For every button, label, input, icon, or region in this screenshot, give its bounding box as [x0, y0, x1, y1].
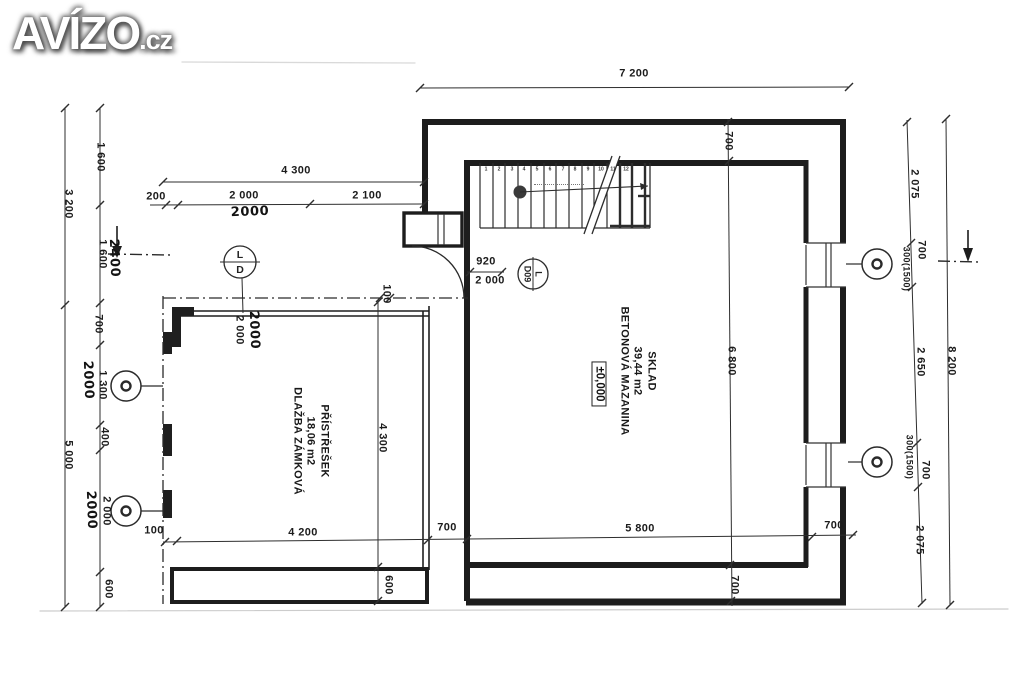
dim-200: 200 — [146, 192, 166, 203]
avizo-logo: AVÍZO.cz — [12, 6, 172, 60]
tread-number: 3 — [511, 168, 514, 173]
dim-2100: 2 100 — [352, 191, 382, 202]
room-floor: DLAŽBA ZÁMKOVÁ — [291, 387, 303, 495]
dim-700-bottom-right: 700 — [824, 521, 844, 532]
dim-700-win-top: 700 — [916, 240, 927, 260]
dim-4300-top: 4 300 — [281, 166, 311, 177]
entrance-pier — [404, 213, 462, 246]
dim-400: 400 — [99, 427, 110, 447]
door-swing-arc — [412, 246, 464, 298]
dim-700-win-bottom: 700 — [920, 460, 931, 480]
drain-symbol-left-bottom — [111, 496, 163, 526]
tread-number: 8 — [574, 168, 577, 173]
dim-gate-2000-hand: 2000 — [247, 310, 261, 349]
dim-700-top: 700 — [723, 131, 734, 151]
level-marker: ±0,000 — [592, 361, 607, 406]
dim-300-1500-top: 300(1500) — [902, 247, 911, 292]
dim-3200: 3 200 — [63, 189, 74, 219]
stair-annotation-smudge — [534, 184, 584, 185]
scan-artifacts — [40, 62, 1008, 611]
dim-700-gap: 700 — [437, 523, 457, 534]
tread-number: 5 — [536, 168, 539, 173]
door-marker-text: L D09 — [523, 265, 544, 283]
dim-1300: 1 300 — [97, 370, 108, 400]
dim-4200: 4 200 — [288, 528, 318, 539]
tread-number: 2 — [498, 168, 501, 173]
dim-2000-left: 2 000 — [101, 496, 112, 526]
drain-symbol-right-top — [846, 249, 892, 279]
dim-6800: 6 800 — [726, 346, 737, 376]
room-floor: BETONOVÁ MAZANINA — [618, 307, 630, 436]
logo-title: AVÍZO — [12, 7, 139, 59]
dim-700-left: 700 — [93, 314, 104, 334]
room-name: PŘÍSTŘEŠEK — [318, 404, 330, 477]
dim-8200: 8 200 — [946, 346, 957, 376]
dim-4300-vert: 4 300 — [377, 423, 388, 453]
tread-number: 9 — [587, 168, 590, 173]
window-right-top — [806, 243, 846, 287]
tread-number: 6 — [549, 168, 552, 173]
dim-door-width: 920 — [476, 257, 496, 268]
tread-number: 12 — [623, 168, 629, 173]
plan-drawing — [0, 0, 1024, 687]
dim-door-height: 2 000 — [475, 276, 505, 287]
window-right-bottom — [806, 443, 846, 487]
tread-number: 7 — [562, 168, 565, 173]
dim-top-width: 7 200 — [619, 69, 649, 80]
room-name: SKLAD — [645, 351, 657, 390]
ld-marker-bottom: D — [236, 265, 244, 276]
tread-number: 4 — [523, 168, 526, 173]
dim-2075-top: 2 075 — [909, 169, 920, 199]
tread-number: 10 — [598, 168, 604, 173]
room-label-pristresek: PŘÍSTŘEŠEK 18,06 m2 DLAŽBA ZÁMKOVÁ — [290, 387, 331, 495]
dim-600-left: 600 — [103, 579, 114, 599]
dim-2000-hand: 2000 — [230, 205, 269, 219]
room-label-sklad: SKLAD 39,44 m2 BETONOVÁ MAZANINA — [617, 307, 658, 436]
dim-700-base: 700 — [729, 575, 740, 595]
tread-number: 1 — [485, 168, 488, 173]
drain-symbol-right-bottom — [848, 447, 892, 477]
dim-1600-a: 1 600 — [95, 142, 106, 172]
dim-100-wall: 100 — [381, 284, 392, 304]
dim-5800: 5 800 — [625, 524, 655, 535]
tread-number: 11 — [610, 168, 615, 173]
dim-100-bottom: 100 — [144, 526, 164, 537]
dim-300-1500-bottom: 300(1500) — [905, 435, 914, 480]
dim-gate-2000: 2 000 — [234, 315, 245, 345]
dim-600-base: 600 — [383, 575, 394, 595]
room-area: 39,44 m2 — [632, 347, 644, 396]
dim-2650: 2 650 — [915, 347, 926, 377]
room-area: 18,06 m2 — [305, 417, 317, 466]
ld-marker-top: L — [237, 250, 243, 261]
dim-5000: 5 000 — [63, 440, 74, 470]
dim-2075-bottom: 2 075 — [914, 525, 925, 555]
dim-2000-hand-a: 2000 — [81, 360, 95, 399]
floor-plan-scan: AVÍZO.cz SKLAD 39,44 m2 BETONOVÁ MAZANIN… — [0, 0, 1024, 687]
dim-2000-hand-b: 2000 — [84, 490, 98, 529]
section-marker-right — [938, 230, 978, 262]
drain-symbol-left-top — [111, 371, 163, 401]
logo-tld: .cz — [139, 25, 172, 55]
dim-2400-hand: 2400 — [107, 238, 121, 277]
dim-2000-top: 2 000 — [229, 191, 259, 202]
